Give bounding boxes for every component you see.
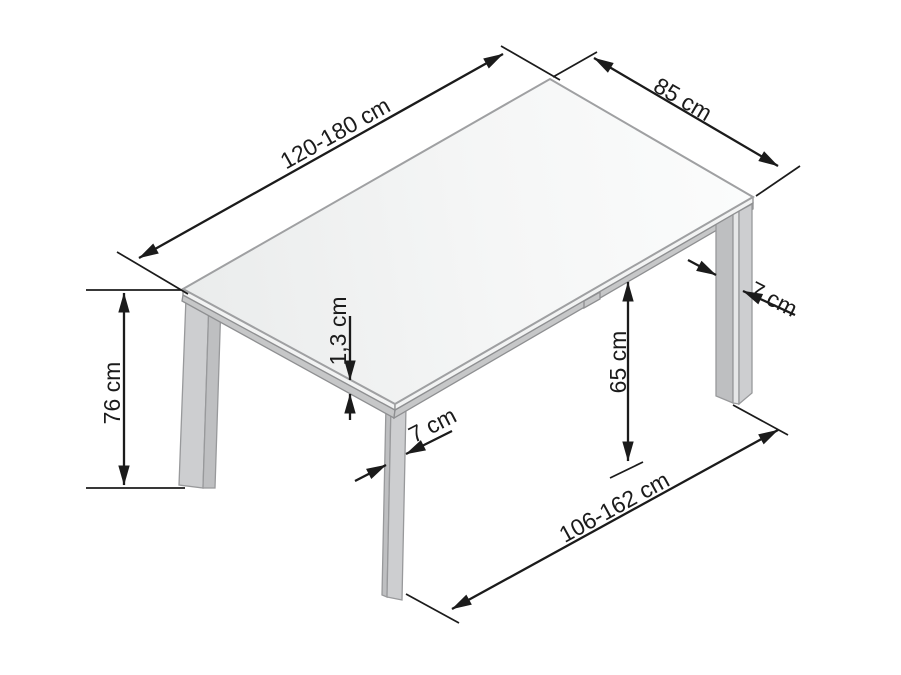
dimension-length-label: 120-180 cm bbox=[276, 92, 395, 174]
table-leg-right-side bbox=[716, 214, 733, 403]
dimension-leg-span-extension-b bbox=[733, 405, 788, 435]
dimension-leg-span-label: 106-162 cm bbox=[555, 466, 674, 547]
table-leg-right-corner bbox=[733, 211, 739, 404]
dimension-clearance-label: 65 cm bbox=[605, 331, 631, 394]
table-leg-front-face bbox=[387, 405, 406, 600]
dimension-right-leg-width-arrow-a bbox=[688, 260, 716, 275]
dimension-height-label: 76 cm bbox=[99, 362, 125, 425]
table-leg-right-face bbox=[739, 204, 752, 404]
dimension-height: 76 cm bbox=[86, 290, 185, 488]
dimension-top-thickness: 1,3 cm bbox=[325, 296, 351, 420]
dimension-leg-span: 106-162 cm bbox=[406, 405, 788, 623]
dimension-length-extension-b bbox=[501, 46, 560, 80]
dimension-front-leg-width-arrow-a bbox=[355, 465, 386, 481]
dimension-front-leg-width: 7 cm bbox=[355, 402, 460, 481]
dimension-clearance: 65 cm bbox=[605, 282, 643, 478]
dimension-top-thickness-label: 1,3 cm bbox=[325, 296, 351, 365]
dimension-right-leg-width-label: 7 cm bbox=[746, 276, 802, 322]
dimension-length-extension-a bbox=[117, 252, 188, 294]
dimension-depth-label: 85 cm bbox=[649, 72, 716, 126]
dimension-depth-extension-a bbox=[553, 52, 597, 77]
dimension-leg-span-extension-a bbox=[406, 594, 459, 623]
diagram-svg: 120-180 cm 85 cm 76 cm 1,3 cm 7 cm 65 cm… bbox=[0, 0, 901, 675]
table bbox=[179, 79, 753, 600]
table-dimension-diagram: 120-180 cm 85 cm 76 cm 1,3 cm 7 cm 65 cm… bbox=[0, 0, 901, 675]
dimension-clearance-floor-tick bbox=[610, 462, 643, 478]
dimension-depth-extension-b bbox=[756, 166, 800, 196]
tabletop-top-face bbox=[183, 79, 753, 404]
